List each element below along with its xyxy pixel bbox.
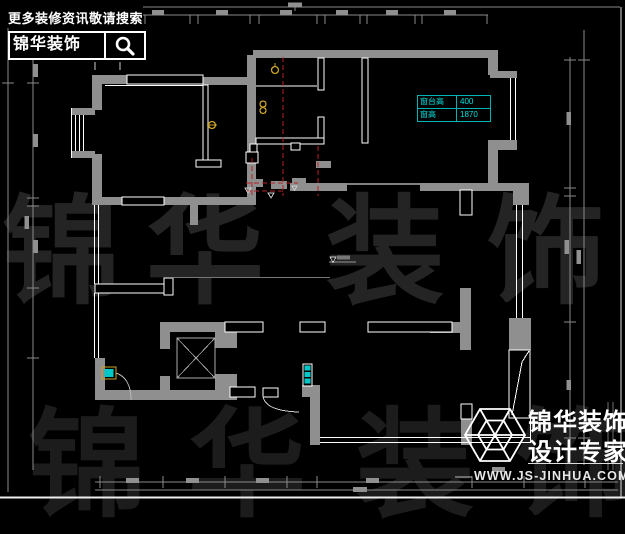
table-row: 窗台高 400	[418, 96, 490, 108]
badge-brand: 锦华装饰	[10, 33, 104, 58]
row-value: 400	[457, 96, 490, 108]
row-label: 窗高	[418, 109, 457, 121]
annotations-cyan	[105, 364, 313, 386]
search-icon	[104, 33, 144, 58]
badge-tagline: 更多装修资讯敬请搜索	[8, 8, 150, 27]
level-marker	[329, 256, 356, 263]
window-height-table: 窗台高 400 窗高 1870	[417, 95, 491, 122]
hidden-lines-red	[246, 57, 318, 196]
cube-logo-icon	[464, 404, 526, 466]
badge-box: 锦华装饰	[8, 31, 146, 60]
brand-logo: 锦华装饰 设计专家 WWW.JS-JINHUA.COM	[462, 400, 625, 490]
logo-subtitle: 设计专家	[528, 432, 625, 467]
table-row: 窗高 1870	[418, 108, 490, 121]
floorplan-canvas: 锦 华 装 饰 锦 华 装 饰	[0, 0, 625, 500]
windows	[72, 78, 532, 443]
search-badge: 更多装修资讯敬请搜索 锦华装饰	[8, 8, 150, 60]
row-label: 窗台高	[418, 96, 457, 108]
logo-url: WWW.JS-JINHUA.COM	[474, 469, 625, 483]
row-value: 1870	[457, 109, 490, 121]
logo-divider	[528, 463, 623, 464]
